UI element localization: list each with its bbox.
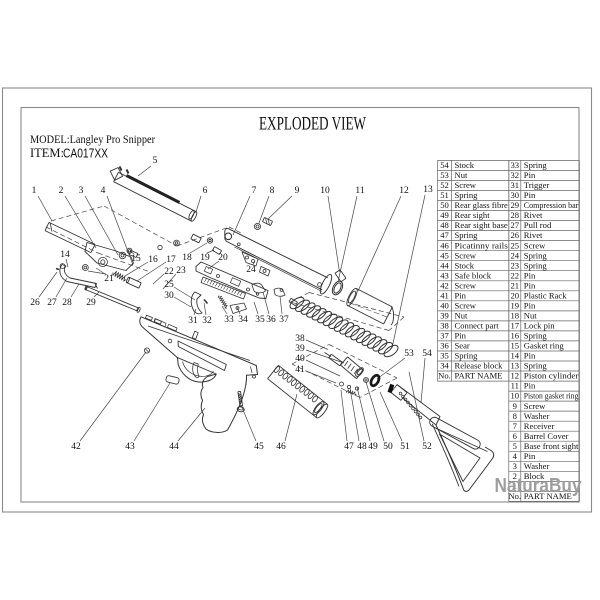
svg-text:21: 21 xyxy=(104,274,114,284)
svg-text:Spring: Spring xyxy=(524,260,548,270)
svg-text:Screw: Screw xyxy=(524,240,546,250)
svg-text:19: 19 xyxy=(511,300,520,310)
svg-text:Spring: Spring xyxy=(524,361,548,371)
svg-text:NaturaBuy: NaturaBuy xyxy=(495,475,583,497)
svg-text:49: 49 xyxy=(440,210,449,220)
svg-text:Nut: Nut xyxy=(524,311,538,321)
svg-text:6: 6 xyxy=(203,186,208,196)
svg-text:44: 44 xyxy=(440,260,449,270)
svg-text:7: 7 xyxy=(252,186,257,196)
svg-text:No.: No. xyxy=(438,371,451,381)
svg-text:54: 54 xyxy=(440,160,449,170)
svg-text:42: 42 xyxy=(440,280,449,290)
svg-text:14: 14 xyxy=(511,351,520,361)
svg-text:Spring: Spring xyxy=(455,230,479,240)
svg-text:Pin: Pin xyxy=(524,451,536,461)
svg-text:Washer: Washer xyxy=(524,411,550,421)
svg-text:Screw: Screw xyxy=(455,250,477,260)
svg-text:4: 4 xyxy=(513,451,518,461)
svg-text:54: 54 xyxy=(422,349,432,359)
svg-text:1: 1 xyxy=(32,186,37,196)
svg-text:42: 42 xyxy=(71,442,81,452)
svg-text:28: 28 xyxy=(511,210,520,220)
svg-text:17: 17 xyxy=(511,321,520,331)
svg-text:MODEL:Langley Pro Snipper: MODEL:Langley Pro Snipper xyxy=(30,132,155,146)
svg-text:8: 8 xyxy=(270,186,275,196)
svg-text:51: 51 xyxy=(400,442,410,452)
svg-text:Rear sight: Rear sight xyxy=(455,210,491,220)
svg-text:Spring: Spring xyxy=(524,160,548,170)
svg-text:11: 11 xyxy=(511,381,519,391)
svg-text:32: 32 xyxy=(511,170,520,180)
svg-text:Washer: Washer xyxy=(524,461,550,471)
svg-text:40: 40 xyxy=(295,354,305,364)
svg-text:Spring: Spring xyxy=(524,331,548,341)
svg-text:Compression bar: Compression bar xyxy=(524,200,579,210)
svg-text:Spring: Spring xyxy=(455,190,479,200)
svg-text:Trigger: Trigger xyxy=(524,180,550,190)
svg-text:Barrel Cover: Barrel Cover xyxy=(524,431,569,441)
svg-text:Pin: Pin xyxy=(455,331,467,341)
svg-text:Gasket ring: Gasket ring xyxy=(524,341,565,351)
svg-text:3: 3 xyxy=(513,461,517,471)
svg-text:4: 4 xyxy=(101,186,106,196)
svg-text:45: 45 xyxy=(440,250,449,260)
svg-text:29: 29 xyxy=(511,200,520,210)
svg-text:17: 17 xyxy=(166,255,176,265)
svg-text:Pin: Pin xyxy=(455,290,467,300)
svg-text:47: 47 xyxy=(344,442,354,452)
svg-text:14: 14 xyxy=(60,250,70,260)
svg-text:Screw: Screw xyxy=(455,280,477,290)
svg-text:49: 49 xyxy=(368,442,378,452)
svg-text:Lock pin: Lock pin xyxy=(524,321,555,331)
svg-text:29: 29 xyxy=(86,298,96,308)
svg-text:Rear glass fibre: Rear glass fibre xyxy=(455,200,508,210)
svg-text:6: 6 xyxy=(513,431,518,441)
svg-text:23: 23 xyxy=(176,266,186,276)
svg-text:20: 20 xyxy=(218,253,228,263)
svg-text:2: 2 xyxy=(59,186,64,196)
svg-text:Stock: Stock xyxy=(455,260,475,270)
svg-text:15: 15 xyxy=(511,341,520,351)
svg-text:Connect part: Connect part xyxy=(455,321,500,331)
svg-text:20: 20 xyxy=(511,290,520,300)
svg-text:40: 40 xyxy=(440,300,449,310)
svg-text:9: 9 xyxy=(513,401,517,411)
svg-text:31: 31 xyxy=(511,180,520,190)
svg-text:46: 46 xyxy=(440,240,449,250)
svg-text:37: 37 xyxy=(279,315,289,325)
svg-text:26: 26 xyxy=(511,230,520,240)
svg-text:34: 34 xyxy=(238,315,248,325)
svg-text:39: 39 xyxy=(295,344,305,354)
svg-text:22: 22 xyxy=(511,270,520,280)
svg-text:41: 41 xyxy=(440,290,449,300)
svg-text:ITEM:: ITEM: xyxy=(30,146,64,160)
svg-text:28: 28 xyxy=(62,298,72,308)
svg-text:Pin: Pin xyxy=(524,381,536,391)
svg-text:Screw: Screw xyxy=(524,401,546,411)
svg-text:48: 48 xyxy=(357,442,367,452)
svg-text:12: 12 xyxy=(511,371,520,381)
svg-text:36: 36 xyxy=(266,315,276,325)
svg-text:Release block: Release block xyxy=(455,361,504,371)
svg-text:34: 34 xyxy=(440,361,449,371)
svg-text:12: 12 xyxy=(399,186,409,196)
svg-text:9: 9 xyxy=(295,186,300,196)
svg-text:31: 31 xyxy=(188,316,198,326)
svg-text:46: 46 xyxy=(276,442,286,452)
svg-text:45: 45 xyxy=(254,442,264,452)
svg-text:18: 18 xyxy=(511,311,520,321)
svg-text:26: 26 xyxy=(30,298,40,308)
svg-text:24: 24 xyxy=(511,250,520,260)
svg-text:Pin: Pin xyxy=(524,270,536,280)
svg-text:Piston cylinder: Piston cylinder xyxy=(524,371,579,381)
svg-text:Screw: Screw xyxy=(455,180,477,190)
svg-text:Receiver: Receiver xyxy=(524,421,555,431)
svg-text:50: 50 xyxy=(440,200,449,210)
svg-text:30: 30 xyxy=(511,190,520,200)
svg-text:51: 51 xyxy=(440,190,449,200)
svg-text:50: 50 xyxy=(383,442,393,452)
svg-text:43: 43 xyxy=(125,442,135,452)
svg-text:24: 24 xyxy=(246,265,256,275)
svg-text:Piston gasket ring: Piston gasket ring xyxy=(524,391,579,401)
svg-text:22: 22 xyxy=(164,267,174,277)
svg-text:Base front sight: Base front sight xyxy=(524,441,579,451)
svg-text:44: 44 xyxy=(169,442,179,452)
svg-text:Rear sight base: Rear sight base xyxy=(455,220,508,230)
svg-text:23: 23 xyxy=(511,260,520,270)
svg-text:Nut: Nut xyxy=(455,311,469,321)
svg-text:PART NAME: PART NAME xyxy=(455,371,503,381)
svg-text:10: 10 xyxy=(511,391,520,401)
svg-text:Rivet: Rivet xyxy=(524,230,543,240)
svg-text:41: 41 xyxy=(295,365,305,375)
svg-text:25: 25 xyxy=(164,280,174,290)
svg-text:47: 47 xyxy=(440,230,449,240)
svg-text:Pin: Pin xyxy=(524,190,536,200)
svg-text:Pin: Pin xyxy=(524,280,536,290)
svg-text:19: 19 xyxy=(200,253,210,263)
svg-text:Nut: Nut xyxy=(455,170,469,180)
svg-text:11: 11 xyxy=(355,186,364,196)
svg-text:21: 21 xyxy=(511,280,520,290)
svg-text:38: 38 xyxy=(440,321,449,331)
svg-text:Picatinny rails: Picatinny rails xyxy=(455,240,509,250)
svg-text:Pin: Pin xyxy=(524,351,536,361)
svg-text:39: 39 xyxy=(440,311,449,321)
svg-text:3: 3 xyxy=(79,186,84,196)
svg-text:35: 35 xyxy=(440,351,449,361)
svg-text:5: 5 xyxy=(153,156,158,166)
svg-text:38: 38 xyxy=(295,334,305,344)
svg-text:27: 27 xyxy=(511,220,520,230)
svg-text:35: 35 xyxy=(255,315,265,325)
svg-text:18: 18 xyxy=(182,253,192,263)
svg-text:36: 36 xyxy=(440,341,449,351)
svg-text:Safe block: Safe block xyxy=(455,270,492,280)
svg-text:52: 52 xyxy=(440,180,449,190)
svg-text:5: 5 xyxy=(513,441,517,451)
svg-text:13: 13 xyxy=(423,185,433,195)
svg-text:Screw: Screw xyxy=(455,300,477,310)
svg-text:Sear: Sear xyxy=(455,341,470,351)
svg-text:Plastic Rack: Plastic Rack xyxy=(524,290,567,300)
svg-text:8: 8 xyxy=(513,411,517,421)
svg-text:27: 27 xyxy=(47,298,57,308)
svg-text:7: 7 xyxy=(513,421,518,431)
svg-text:Pin: Pin xyxy=(524,170,536,180)
svg-text:48: 48 xyxy=(440,220,449,230)
svg-text:Pin: Pin xyxy=(524,300,536,310)
svg-text:30: 30 xyxy=(164,291,174,301)
svg-text:53: 53 xyxy=(404,349,414,359)
svg-text:43: 43 xyxy=(440,270,449,280)
svg-text:16: 16 xyxy=(511,331,520,341)
svg-text:53: 53 xyxy=(440,170,449,180)
svg-text:32: 32 xyxy=(202,316,212,326)
svg-text:CA017XX: CA017XX xyxy=(63,145,108,160)
svg-text:Stock: Stock xyxy=(455,160,475,170)
svg-text:EXPLODED VIEW: EXPLODED VIEW xyxy=(259,113,366,134)
svg-text:13: 13 xyxy=(511,361,520,371)
svg-text:16: 16 xyxy=(148,255,158,265)
svg-text:33: 33 xyxy=(224,315,234,325)
svg-text:52: 52 xyxy=(422,442,432,452)
svg-text:Spring: Spring xyxy=(455,351,479,361)
svg-text:25: 25 xyxy=(511,240,520,250)
svg-text:10: 10 xyxy=(320,186,330,196)
svg-text:37: 37 xyxy=(440,331,449,341)
svg-text:Rivet: Rivet xyxy=(524,210,543,220)
svg-text:Pull rod: Pull rod xyxy=(524,220,552,230)
svg-text:Spring: Spring xyxy=(524,250,548,260)
svg-text:33: 33 xyxy=(511,160,520,170)
